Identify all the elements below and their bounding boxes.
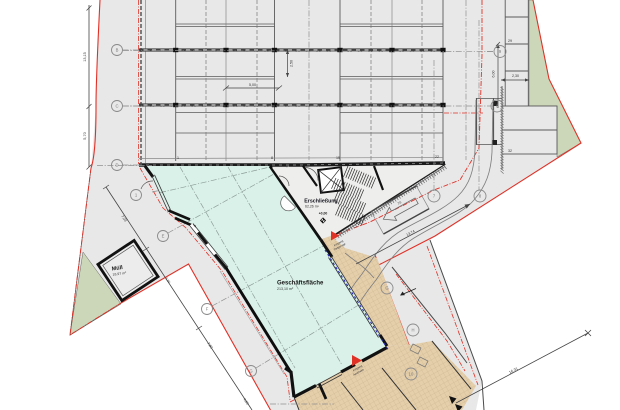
svg-text:6,00: 6,00 (492, 71, 496, 78)
svg-text:8: 8 (271, 156, 273, 160)
svg-text:B: B (116, 48, 119, 53)
svg-text:13,15: 13,15 (83, 52, 87, 62)
svg-text:22: 22 (435, 155, 439, 159)
svg-text:32: 32 (508, 149, 512, 153)
svg-text:62,26 m²: 62,26 m² (305, 205, 320, 209)
svg-text:15: 15 (336, 156, 340, 160)
svg-text:1: 1 (177, 156, 179, 160)
svg-text:C: C (115, 104, 118, 109)
svg-text:213,10 m²: 213,10 m² (277, 287, 294, 291)
svg-text:G: G (249, 369, 252, 374)
svg-text:5,00: 5,00 (249, 83, 256, 87)
svg-text:2,30: 2,30 (512, 74, 519, 78)
svg-text:H: H (411, 328, 414, 333)
svg-text:E: E (162, 234, 165, 239)
svg-text:29: 29 (508, 39, 512, 43)
svg-text:10: 10 (409, 372, 414, 377)
svg-text:G: G (385, 286, 388, 291)
svg-text:D: D (115, 163, 118, 168)
svg-text:Geschäftsfläche: Geschäftsfläche (277, 281, 324, 287)
svg-text:+0,00: +0,00 (319, 212, 328, 216)
svg-text:F: F (206, 307, 209, 312)
svg-text:2,50: 2,50 (290, 60, 294, 67)
svg-text:5,70: 5,70 (83, 132, 87, 139)
